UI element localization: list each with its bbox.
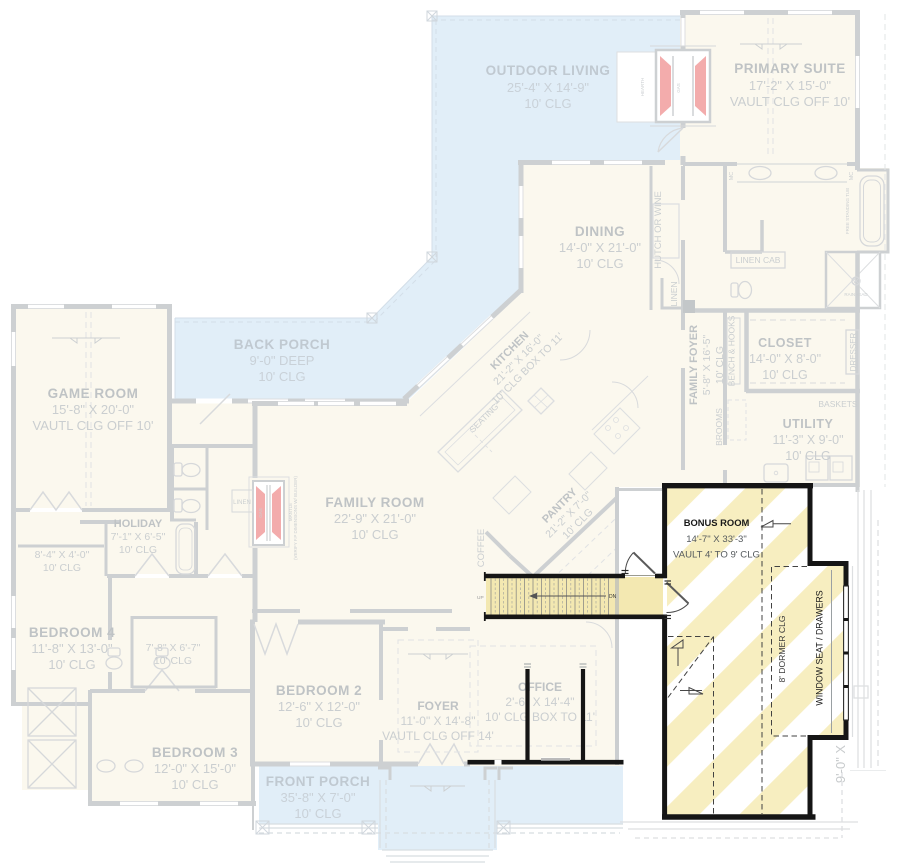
- svg-text:9'-0" X: 9'-0" X: [833, 745, 848, 783]
- svg-text:VAULT CLG OFF 10': VAULT CLG OFF 10': [730, 94, 850, 109]
- svg-text:12'-6" X 12'-0": 12'-6" X 12'-0": [278, 699, 361, 714]
- svg-text:CLOSET: CLOSET: [758, 336, 812, 350]
- svg-text:22'-9" X 21'-0": 22'-9" X 21'-0": [334, 511, 417, 526]
- svg-text:11'-8" X 13'-0": 11'-8" X 13'-0": [31, 641, 113, 656]
- svg-text:PRIMARY SUITE: PRIMARY SUITE: [734, 61, 846, 76]
- svg-text:10' CLG: 10' CLG: [43, 562, 81, 574]
- svg-text:MC: MC: [849, 172, 855, 181]
- svg-text:10' CLG: 10' CLG: [119, 544, 157, 556]
- svg-text:11'-0" X 14'-8": 11'-0" X 14'-8": [401, 714, 476, 728]
- svg-text:12'-0" X 15'-0": 12'-0" X 15'-0": [154, 761, 237, 776]
- svg-text:UP: UP: [477, 595, 484, 601]
- svg-text:BEDROOM 4: BEDROOM 4: [29, 625, 115, 640]
- svg-text:10' CLG: 10' CLG: [258, 369, 305, 384]
- svg-text:10' CLG BOX TO 11': 10' CLG BOX TO 11': [485, 710, 595, 724]
- svg-text:14'-0" X 21'-0": 14'-0" X 21'-0": [559, 240, 642, 255]
- svg-text:FAMILY FOYER: FAMILY FOYER: [688, 325, 700, 405]
- svg-text:8' DORMER CLG: 8' DORMER CLG: [777, 615, 787, 682]
- svg-text:RAINHEAD: RAINHEAD: [844, 292, 868, 297]
- svg-text:BONUS ROOM: BONUS ROOM: [684, 517, 750, 528]
- svg-text:7'-8" X 6'-7": 7'-8" X 6'-7": [146, 642, 201, 654]
- svg-text:10' CLG: 10' CLG: [524, 96, 571, 111]
- svg-text:BEDROOM 3: BEDROOM 3: [152, 745, 238, 760]
- svg-text:10' CLG: 10' CLG: [785, 449, 830, 463]
- svg-text:LINEN: LINEN: [669, 281, 679, 306]
- svg-text:DN: DN: [609, 594, 617, 600]
- svg-text:8'-4" X 4'-0": 8'-4" X 4'-0": [35, 549, 90, 561]
- svg-text:HEARTH: HEARTH: [640, 78, 645, 96]
- svg-text:COFFEE: COFFEE: [476, 529, 487, 568]
- svg-text:BEDROOM 2: BEDROOM 2: [276, 683, 362, 698]
- svg-text:10' CLG: 10' CLG: [295, 715, 342, 730]
- svg-text:14'-0" X 8'-0": 14'-0" X 8'-0": [749, 352, 821, 366]
- svg-text:10' CLG: 10' CLG: [351, 527, 398, 542]
- svg-text:BROOMS: BROOMS: [714, 408, 724, 446]
- svg-text:5'-8" X 16'-5": 5'-8" X 16'-5": [701, 334, 713, 395]
- svg-text:HUTCH OR WINE: HUTCH OR WINE: [653, 191, 664, 269]
- svg-text:2'-6" X 14'-4": 2'-6" X 14'-4": [505, 695, 574, 709]
- svg-text:BENCH & HOOKS: BENCH & HOOKS: [727, 315, 737, 386]
- svg-text:FREE STANDING TUB: FREE STANDING TUB: [845, 188, 850, 234]
- svg-text:MC: MC: [729, 172, 735, 181]
- svg-text:GAS: GAS: [676, 83, 681, 93]
- svg-text:(VERIFY F.P DIMENSIONS W/ BUIL: (VERIFY F.P DIMENSIONS W/ BUILDER): [293, 475, 298, 560]
- svg-text:10' CLG: 10' CLG: [762, 368, 807, 382]
- svg-text:10' CLG: 10' CLG: [714, 346, 726, 384]
- svg-text:10' CLG: 10' CLG: [294, 806, 341, 821]
- svg-text:10' CLG: 10' CLG: [171, 777, 218, 792]
- svg-text:OUTDOOR LIVING: OUTDOOR LIVING: [486, 63, 611, 78]
- svg-text:9'-0" DEEP: 9'-0" DEEP: [250, 353, 315, 368]
- svg-text:17'-2" X 15'-0": 17'-2" X 15'-0": [749, 78, 832, 93]
- svg-text:HOLIDAY: HOLIDAY: [114, 518, 163, 530]
- svg-text:25'-4" X 14'-9": 25'-4" X 14'-9": [507, 80, 590, 95]
- svg-text:LINEN: LINEN: [233, 500, 251, 506]
- svg-text:FRONT PORCH: FRONT PORCH: [266, 774, 371, 789]
- svg-text:OFFICE: OFFICE: [518, 680, 562, 694]
- svg-text:BASKETS: BASKETS: [818, 399, 858, 409]
- svg-text:VAUTL CLG OFF 14': VAUTL CLG OFF 14': [382, 729, 494, 743]
- svg-text:10' CLG: 10' CLG: [154, 655, 192, 667]
- svg-text:DINING: DINING: [575, 224, 625, 239]
- svg-text:FAMILY ROOM: FAMILY ROOM: [325, 495, 424, 510]
- svg-text:WINDOW SEAT / DRAWERS: WINDOW SEAT / DRAWERS: [815, 590, 825, 705]
- svg-text:11'-3" X 9'-0": 11'-3" X 9'-0": [772, 433, 843, 447]
- svg-text:15'-8" X 20'-0": 15'-8" X 20'-0": [52, 402, 135, 417]
- svg-text:GAME ROOM: GAME ROOM: [48, 386, 139, 401]
- svg-text:UTILITY: UTILITY: [783, 417, 834, 431]
- svg-text:7'-1" X 6'-5": 7'-1" X 6'-5": [111, 531, 166, 543]
- svg-text:35'-8" X 7'-0": 35'-8" X 7'-0": [281, 790, 356, 805]
- svg-text:VAULT 4' TO 9' CLG: VAULT 4' TO 9' CLG: [673, 550, 760, 561]
- svg-text:GAS: GAS: [258, 508, 263, 518]
- svg-text:DRESSER: DRESSER: [849, 332, 858, 371]
- svg-text:FOYER: FOYER: [417, 699, 459, 713]
- svg-text:LINEN CAB: LINEN CAB: [736, 255, 781, 265]
- svg-text:BACK PORCH: BACK PORCH: [234, 337, 331, 352]
- svg-text:10' CLG: 10' CLG: [576, 256, 623, 271]
- svg-text:14'-7" X 33'-3": 14'-7" X 33'-3": [686, 534, 747, 545]
- svg-text:VAUTL CLG OFF 10': VAUTL CLG OFF 10': [33, 418, 154, 433]
- svg-text:10' CLG: 10' CLG: [48, 657, 95, 672]
